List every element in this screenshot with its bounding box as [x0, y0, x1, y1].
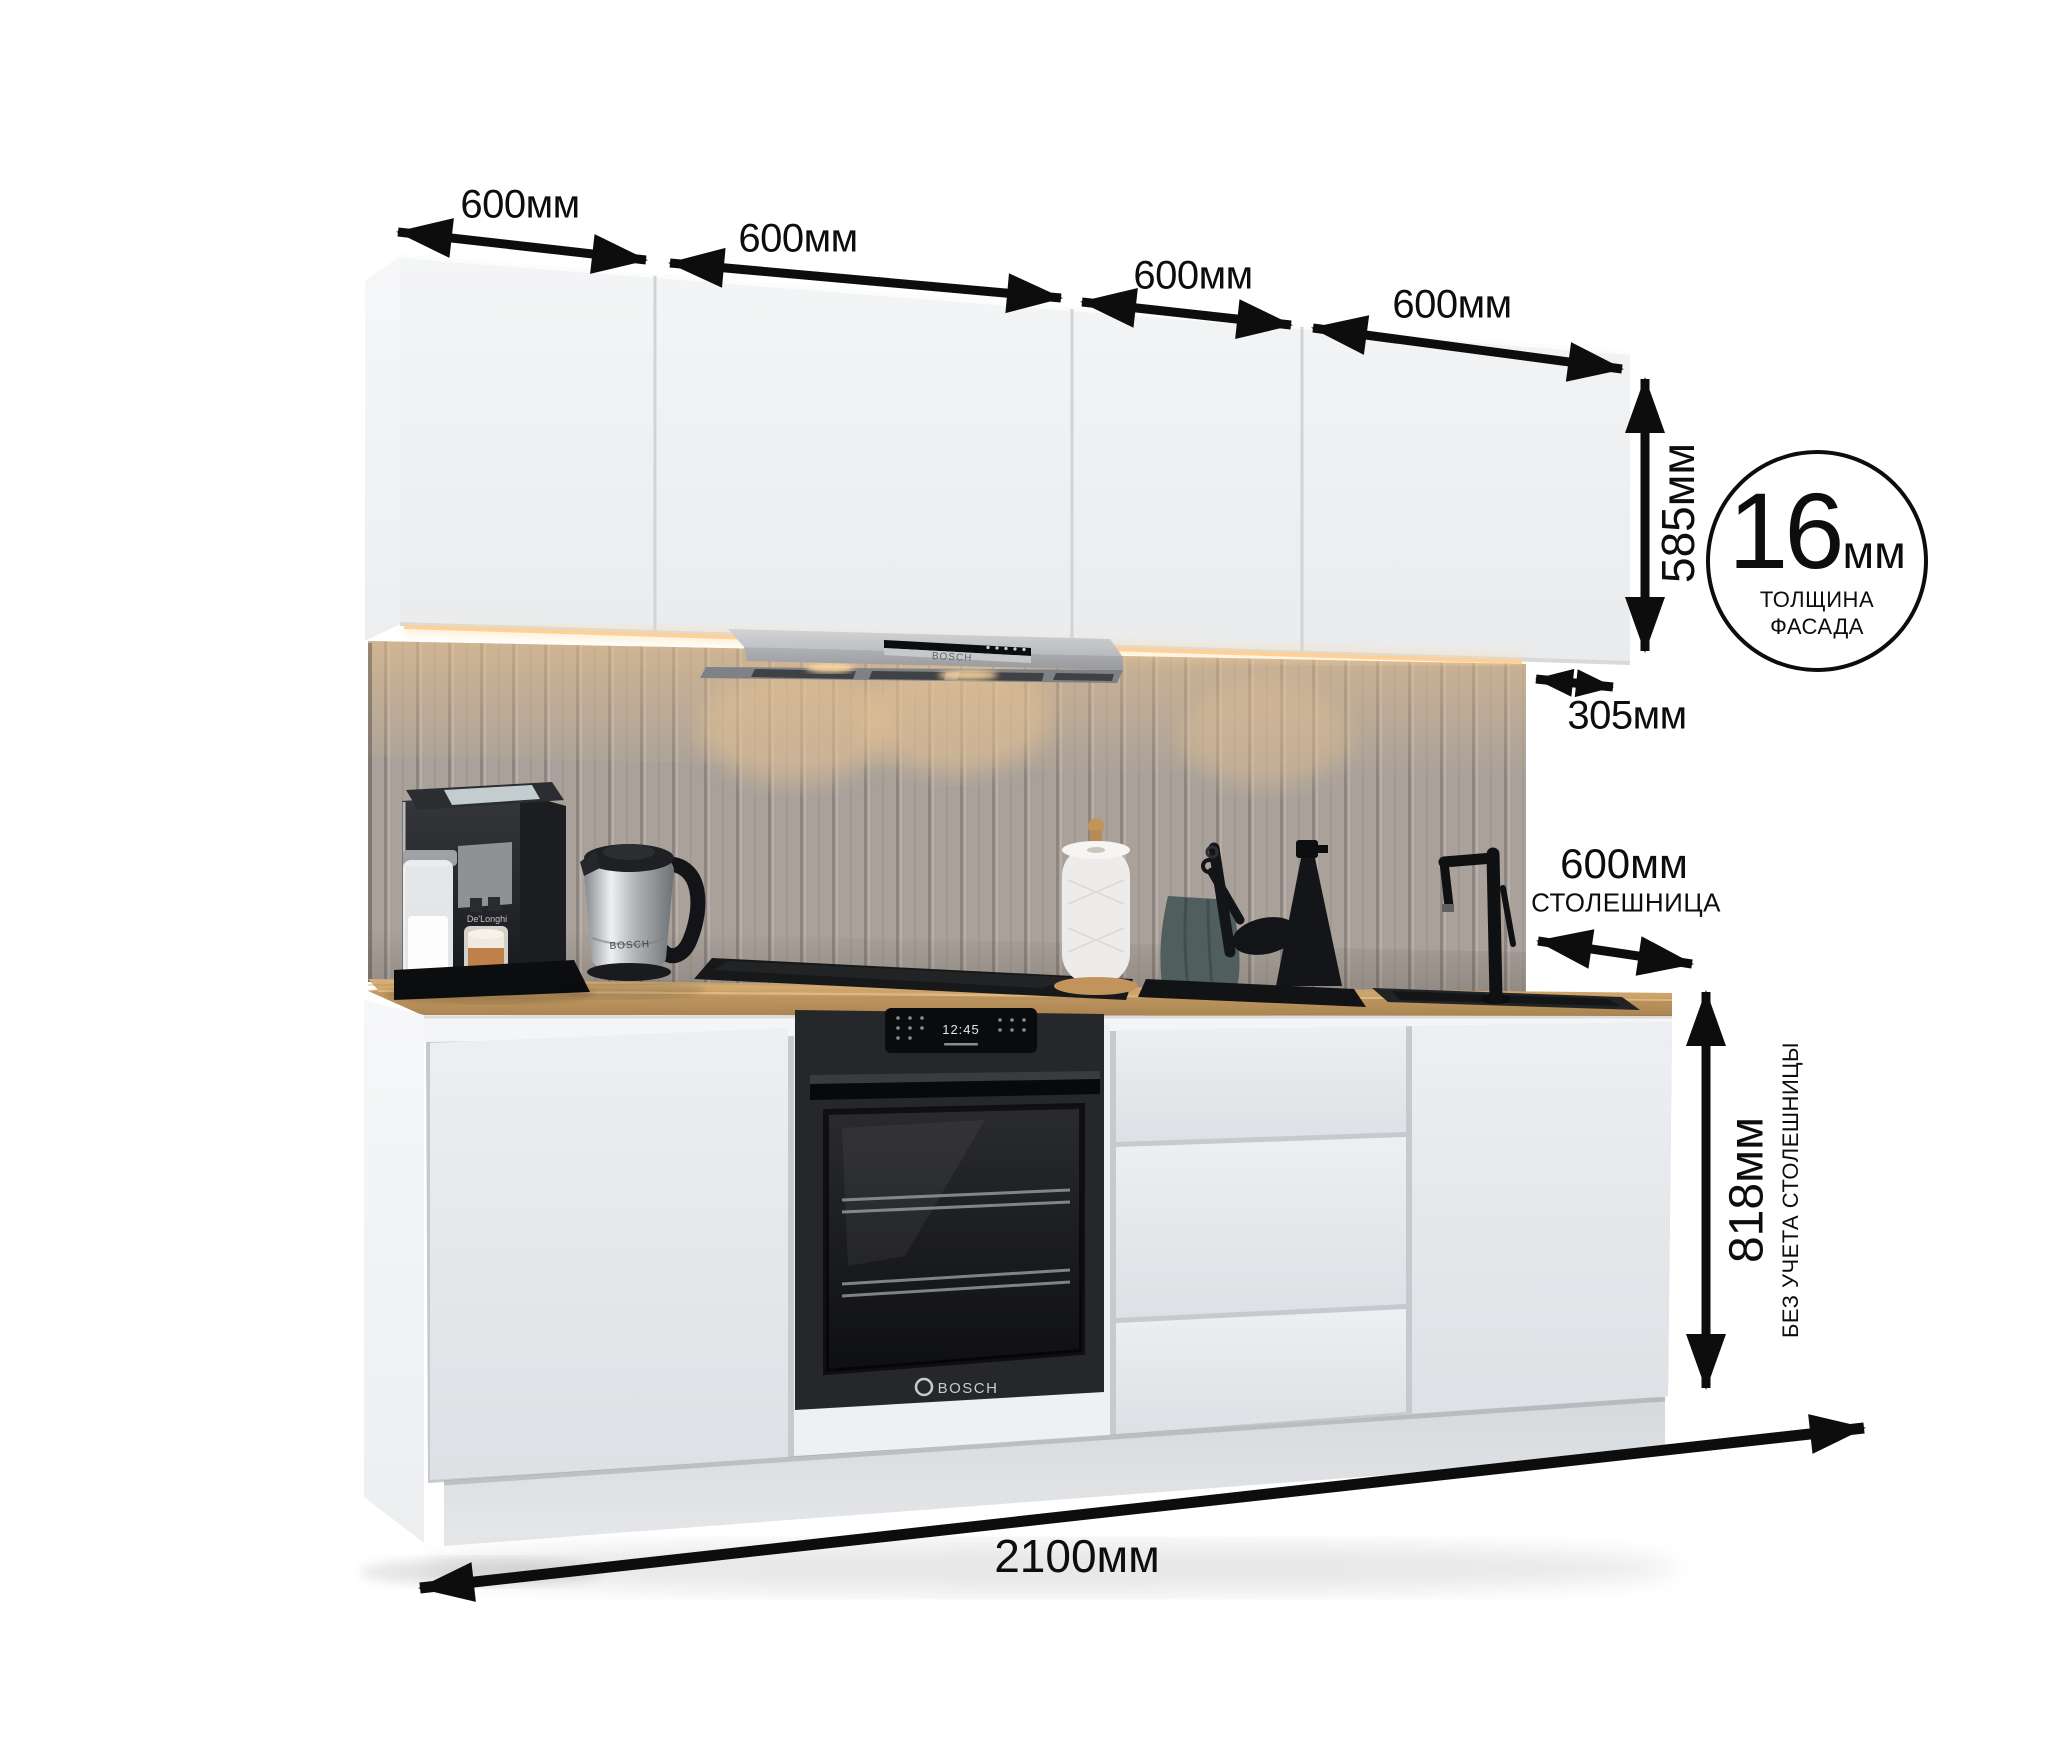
coffee-spout-right [488, 897, 500, 911]
dim-label-600-1: 600мм [460, 183, 579, 228]
coffee-machine: De'Longhi [385, 782, 595, 1003]
hood-lamp-left [806, 663, 854, 673]
badge-unit: мм [1842, 532, 1905, 573]
hood-vent-4 [1053, 673, 1114, 681]
kettle-brand-text: BOSCH [609, 939, 650, 952]
upper-cabinet-side-panel [365, 256, 400, 641]
badge-caption-1: ТОЛЩИНА [1760, 587, 1874, 613]
hood-lamp-right [938, 670, 998, 680]
paper-towel-core [1087, 847, 1105, 853]
dim-caption-818: БЕЗ УЧЕТА СТОЛЕШНИЦЫ [1778, 1042, 1804, 1338]
dim-label-600-countertop: 600мм [1560, 840, 1688, 888]
kitchen-illustration: BOSCH 12:45 [0, 0, 2048, 1757]
hood-vent-2 [869, 671, 946, 680]
base-side-panel [364, 1000, 424, 1543]
dim-label-600-4: 600мм [1392, 283, 1511, 328]
towel-holder-base [1054, 977, 1138, 995]
drawer-3 [1116, 1309, 1406, 1434]
coffee-spout-left [470, 898, 482, 912]
badge-caption-2: ФАСАДА [1770, 614, 1864, 640]
oven-brand-text: BOSCH [938, 1380, 999, 1397]
dim-label-585: 585мм [1651, 443, 1705, 583]
kettle-base [587, 963, 671, 981]
dim-arrow-305 [1536, 679, 1613, 687]
oven-clock: 12:45 [942, 1022, 980, 1037]
led-light-pool-right [1180, 684, 1350, 788]
dim-label-305: 305мм [1567, 694, 1686, 739]
latte-foam-top [468, 929, 504, 939]
drawer-2 [1116, 1137, 1406, 1318]
coffee-machine-brand-text: De'Longhi [467, 914, 507, 924]
dim-label-818: 818мм [1720, 1117, 1775, 1263]
sink-cabinet-door [1412, 1022, 1672, 1429]
faucet-aerator [1442, 904, 1454, 912]
dim-caption-countertop: СТОЛЕШНИЦА [1531, 888, 1721, 919]
brew-unit [458, 842, 512, 908]
coffee-machine-side [520, 793, 566, 988]
hood-brand-text: BOSCH [932, 651, 973, 664]
dim-label-600-3: 600мм [1133, 254, 1252, 299]
base-door-left [430, 1028, 788, 1480]
oven: 12:45 BOSCH [795, 1008, 1104, 1410]
badge-value: 16 [1728, 482, 1840, 579]
dim-arrow-600-1 [398, 232, 646, 260]
kettle-shadow [555, 982, 705, 998]
soap-pump-spout [1314, 845, 1328, 853]
faucet-arm [1444, 858, 1493, 862]
kitchen-product-image: BOSCH 12:45 [0, 0, 2048, 1757]
paper-towel-roll [1062, 846, 1130, 984]
kettle-lid [603, 844, 655, 860]
faucet-spout [1444, 862, 1449, 906]
dim-label-600-2: 600мм [738, 217, 857, 262]
faucet-column [1493, 854, 1496, 998]
facade-thickness-badge: 16 мм ТОЛЩИНА ФАСАДА [1706, 450, 1928, 672]
dim-label-2100: 2100мм [994, 1529, 1160, 1583]
drawer-1 [1116, 1026, 1406, 1142]
dim-arrow-600-countertop [1538, 941, 1692, 964]
